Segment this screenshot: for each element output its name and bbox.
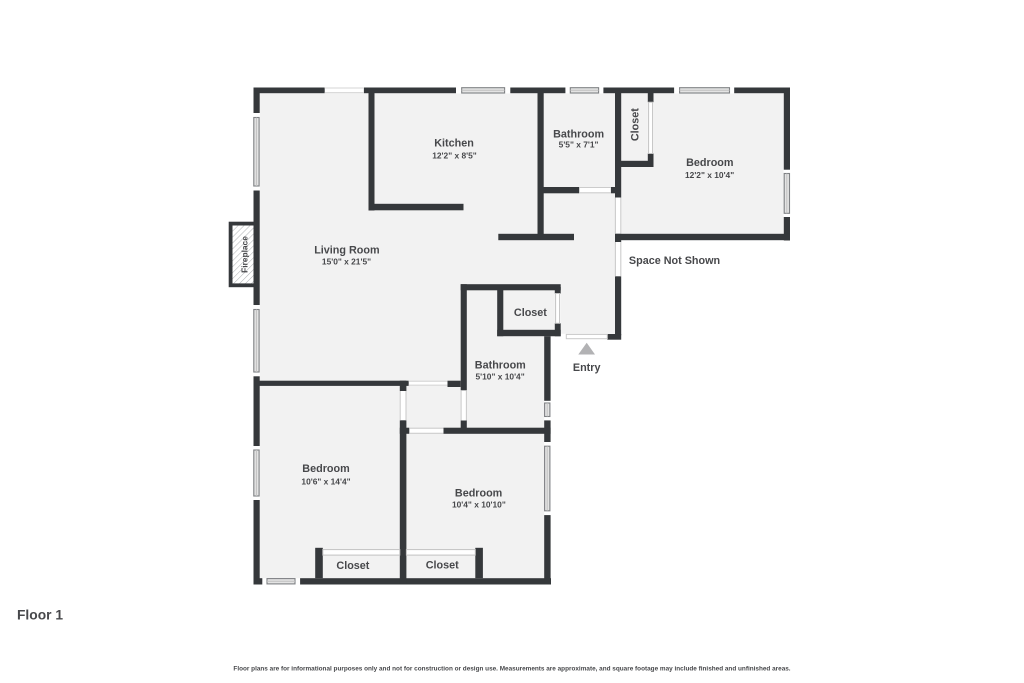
svg-text:10'6" x 14'4": 10'6" x 14'4" (301, 476, 350, 486)
svg-text:Floor plans are for informatio: Floor plans are for informational purpos… (233, 665, 790, 672)
svg-text:Closet: Closet (514, 307, 547, 319)
svg-text:Living Room: Living Room (314, 244, 379, 256)
svg-text:Closet: Closet (630, 108, 642, 141)
svg-text:5'10" x 10'4": 5'10" x 10'4" (476, 372, 525, 382)
svg-text:Closet: Closet (426, 560, 459, 572)
svg-text:Floor 1: Floor 1 (17, 608, 63, 623)
svg-text:15'0" x 21'5": 15'0" x 21'5" (322, 257, 371, 267)
svg-text:Bedroom: Bedroom (686, 157, 733, 169)
svg-text:Fireplace: Fireplace (239, 236, 249, 273)
svg-text:5'5" x 7'1": 5'5" x 7'1" (559, 140, 599, 150)
svg-text:Bedroom: Bedroom (455, 487, 502, 499)
svg-text:Entry: Entry (573, 362, 601, 374)
svg-text:12'2" x 10'4": 12'2" x 10'4" (685, 170, 734, 180)
svg-text:Bathroom: Bathroom (475, 359, 526, 371)
svg-text:Bedroom: Bedroom (302, 463, 349, 475)
svg-text:Bathroom: Bathroom (553, 128, 604, 140)
svg-text:Kitchen: Kitchen (434, 138, 474, 150)
svg-text:12'2" x 8'5": 12'2" x 8'5" (432, 150, 477, 160)
svg-text:10'4" x 10'10": 10'4" x 10'10" (452, 500, 506, 510)
svg-text:Closet: Closet (336, 560, 369, 572)
svg-text:Space Not Shown: Space Not Shown (629, 255, 720, 267)
